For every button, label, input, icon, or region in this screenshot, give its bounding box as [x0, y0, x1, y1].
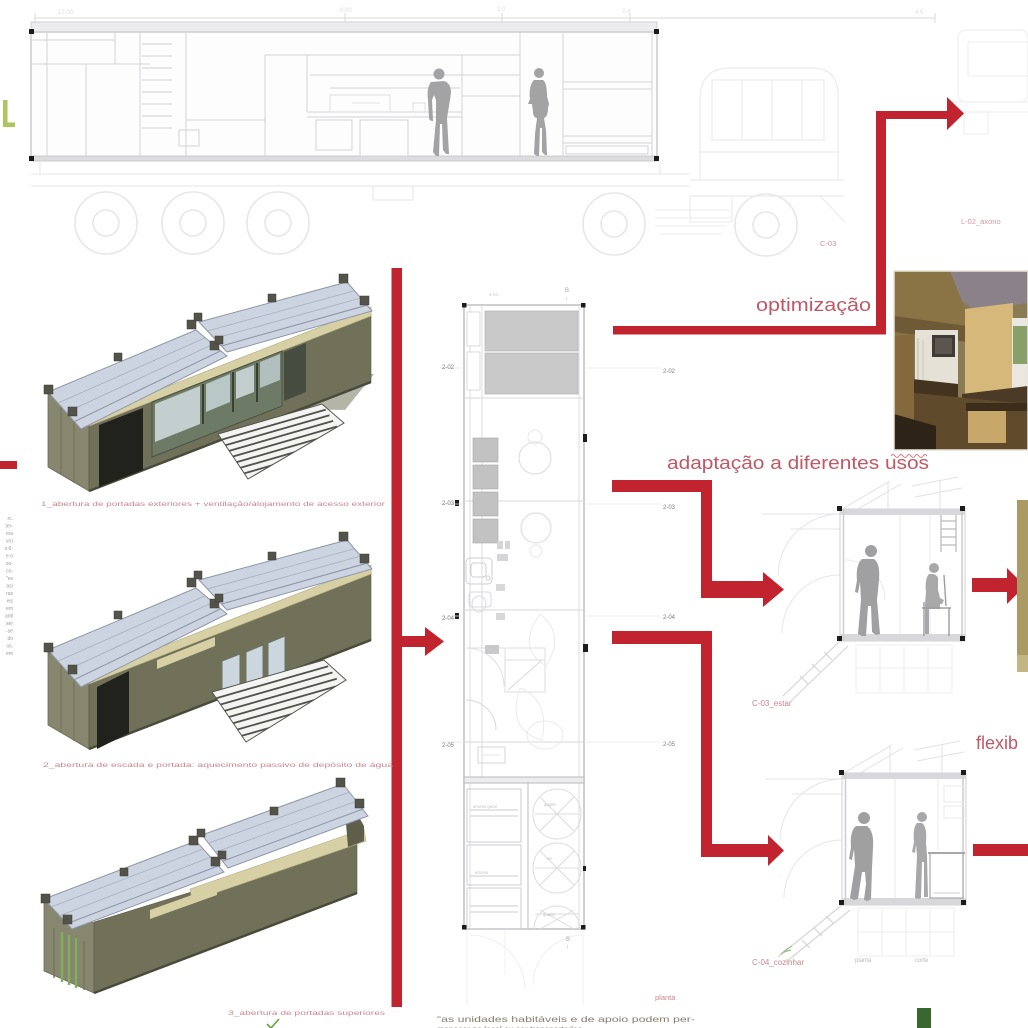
svg-text:3_abertura de portadas superio: 3_abertura de portadas superiores [228, 1010, 386, 1017]
svg-text:do: do [7, 636, 13, 642]
svg-text:em: em [6, 651, 13, 657]
svg-text:optimização: optimização [756, 295, 871, 315]
svg-text:em: em [6, 606, 13, 612]
svg-text:1_abertura de portadas exterio: 1_abertura de portadas exteriores + vent… [41, 501, 386, 508]
svg-text:C-03: C-03 [820, 239, 836, 248]
svg-text:so-: so- [6, 561, 13, 567]
svg-text:arrumo geral: arrumo geral [473, 804, 497, 809]
svg-text:2-02: 2-02 [442, 365, 455, 371]
svg-text:rc.: rc. [7, 516, 13, 522]
svg-text:corte: corte [915, 958, 929, 964]
svg-text:12.00: 12.00 [58, 10, 74, 16]
svg-text:quarto: quarto [544, 802, 557, 807]
svg-text:2-02: 2-02 [663, 369, 676, 375]
svg-text:ras: ras [6, 591, 13, 597]
svg-text:adaptação a diferentes usos: adaptação a diferentes usos [667, 453, 929, 473]
svg-text:2_abertura de escada e portada: 2_abertura de escada e portada: aquecime… [43, 762, 394, 769]
svg-text:eis: eis [7, 599, 14, 605]
svg-text:2.4: 2.4 [622, 9, 631, 15]
svg-text:ter-: ter- [6, 524, 14, 530]
svg-text:planta: planta [655, 993, 676, 1002]
svg-text:2-04: 2-04 [442, 616, 455, 622]
svg-text:"es: "es [6, 576, 14, 582]
svg-text:ser: ser [6, 621, 13, 627]
svg-text:↑: ↑ [566, 945, 569, 951]
svg-text:2-05: 2-05 [442, 743, 455, 749]
svg-text:L-02_axono: L-02_axono [961, 217, 1001, 226]
svg-text:↓: ↓ [565, 296, 568, 302]
svg-text:2-03: 2-03 [663, 505, 676, 511]
svg-text:co-: co- [6, 569, 13, 575]
svg-text:2-05: 2-05 [663, 742, 676, 748]
svg-text:wc: wc [547, 856, 552, 861]
svg-text:s.6-: s.6- [5, 546, 14, 552]
svg-text:C-03_estar: C-03_estar [752, 699, 792, 708]
svg-text:-se: -se [6, 629, 13, 635]
svg-text:B: B [566, 937, 570, 943]
svg-text:os.: os. [6, 644, 13, 650]
svg-text:4-04: 4-04 [489, 292, 499, 297]
svg-text:manecer no local ou ser transp: manecer no local ou ser transportadas [437, 1024, 582, 1028]
svg-text:B: B [565, 288, 569, 294]
svg-text:4.5: 4.5 [915, 10, 924, 16]
svg-text:e o: e o [6, 554, 13, 560]
svg-text:planta: planta [855, 958, 872, 964]
svg-text:as/: as/ [6, 584, 13, 590]
svg-text:arrumo: arrumo [475, 870, 489, 875]
svg-text:“as unidades habitáveis e de a: “as unidades habitáveis e de apoio podem… [437, 1014, 695, 1024]
svg-text:roa: roa [6, 531, 13, 537]
svg-text:6.00: 6.00 [340, 8, 352, 14]
svg-text:anti: anti [5, 614, 13, 620]
svg-text:quarto: quarto [543, 912, 556, 917]
svg-text:vo): vo) [6, 539, 13, 545]
svg-text:3.0: 3.0 [497, 7, 506, 13]
svg-text:2-04: 2-04 [663, 615, 676, 621]
svg-text:2-03: 2-03 [442, 501, 455, 507]
svg-text:flexib: flexib [976, 733, 1018, 753]
svg-text:C-04_cozinhar: C-04_cozinhar [752, 958, 804, 967]
